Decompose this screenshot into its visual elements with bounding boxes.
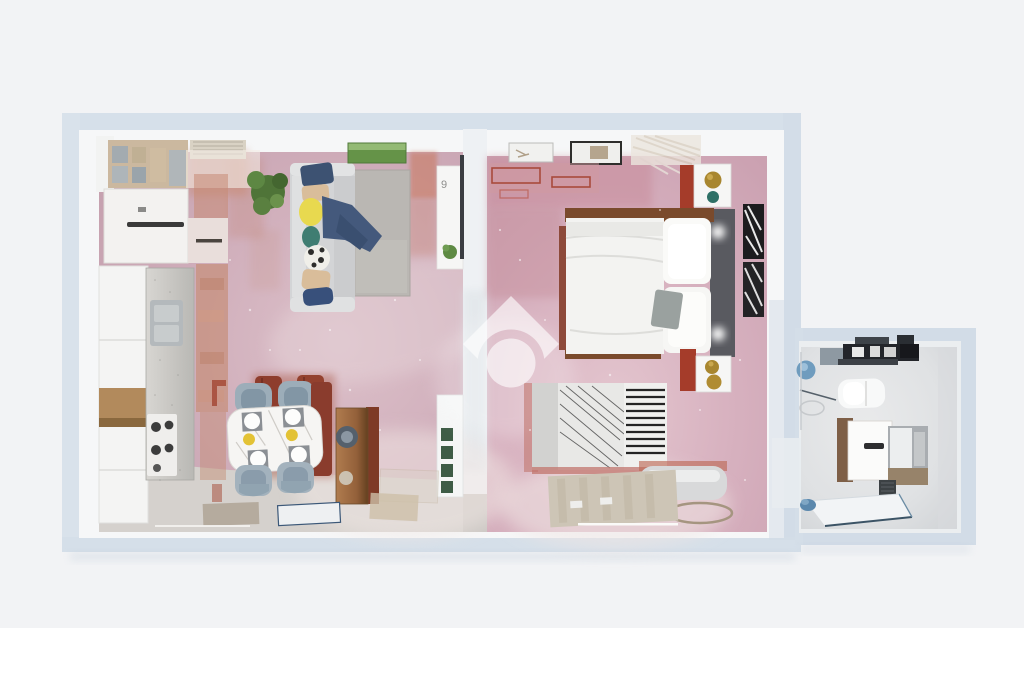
svg-text:9: 9 [441, 179, 447, 191]
